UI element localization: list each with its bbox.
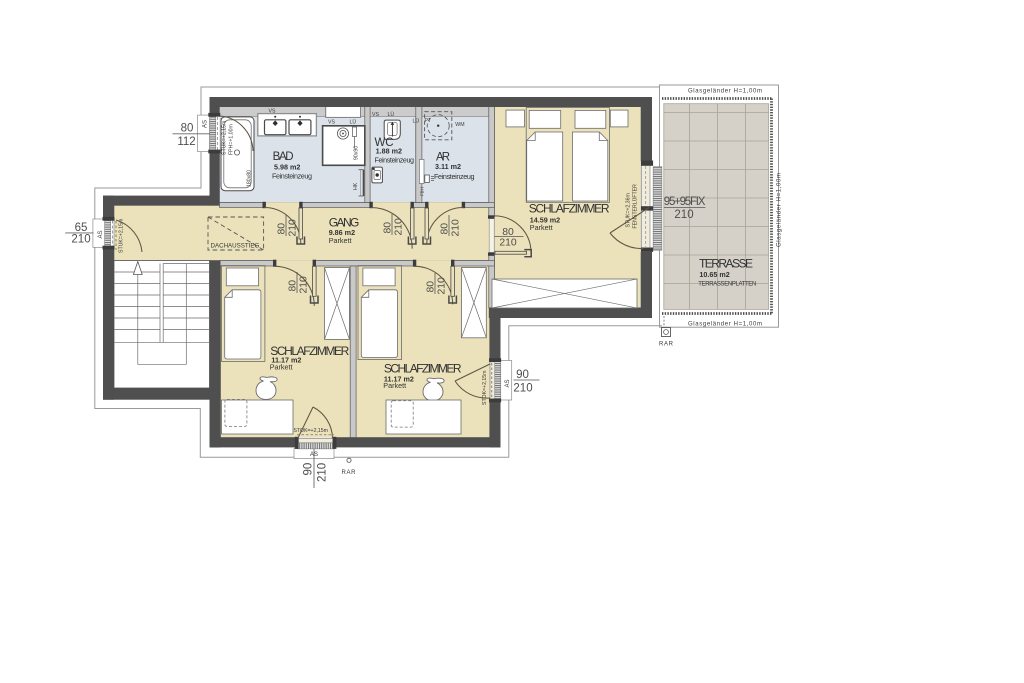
- svg-text:TERRASSE: TERRASSE: [699, 257, 753, 271]
- svg-text:210: 210: [499, 238, 517, 249]
- svg-text:RAR: RAR: [659, 342, 674, 348]
- svg-text:Parkett: Parkett: [530, 223, 553, 232]
- svg-text:1.88 m2: 1.88 m2: [376, 146, 402, 155]
- svg-text:STUK=+2,15m: STUK=+2,15m: [222, 121, 228, 155]
- svg-text:Parkett: Parkett: [329, 236, 352, 245]
- svg-text:LÜ: LÜ: [413, 118, 420, 125]
- svg-text:112: 112: [177, 136, 195, 148]
- svg-text:AS: AS: [203, 120, 209, 128]
- svg-text:65: 65: [75, 222, 88, 234]
- svg-text:BAD: BAD: [273, 151, 294, 163]
- svg-text:10.65 m2: 10.65 m2: [699, 270, 729, 279]
- svg-text:Feinsteinzeug: Feinsteinzeug: [375, 156, 415, 165]
- svg-text:Glasgeländer H=1,00m: Glasgeländer H=1,00m: [777, 173, 783, 247]
- svg-text:Feinsteinzeug: Feinsteinzeug: [272, 171, 312, 180]
- svg-text:SCHLAFZIMMER: SCHLAFZIMMER: [529, 202, 610, 216]
- svg-text:210: 210: [437, 277, 448, 295]
- svg-text:Glasgeländer H=1,00m: Glasgeländer H=1,00m: [688, 89, 762, 95]
- svg-text:AS: AS: [505, 379, 511, 387]
- svg-text:210: 210: [674, 209, 693, 221]
- svg-text:VS: VS: [269, 109, 276, 115]
- svg-text:FENSTERLÜFTER: FENSTERLÜFTER: [632, 184, 639, 229]
- svg-text:210: 210: [299, 276, 310, 294]
- svg-text:90: 90: [303, 463, 315, 476]
- svg-text:80: 80: [181, 122, 194, 134]
- svg-text:Parkett: Parkett: [270, 363, 293, 372]
- svg-text:FBH: FBH: [420, 187, 425, 196]
- svg-text:TERRASSENPLATTEN: TERRASSENPLATTEN: [698, 282, 756, 288]
- svg-text:FPH=+1,00m: FPH=+1,00m: [229, 124, 235, 155]
- svg-text:PT: PT: [425, 118, 432, 124]
- svg-text:WM: WM: [455, 122, 464, 128]
- svg-text:210: 210: [288, 219, 299, 237]
- svg-text:5.98 m2: 5.98 m2: [274, 163, 300, 172]
- svg-text:Glasgeländer H=1,00m: Glasgeländer H=1,00m: [688, 322, 762, 328]
- svg-text:210: 210: [317, 463, 329, 482]
- svg-text:90: 90: [516, 369, 529, 381]
- svg-text:210: 210: [394, 218, 405, 236]
- svg-text:Feinsteinzeug: Feinsteinzeug: [434, 172, 475, 181]
- svg-text:LÜ: LÜ: [388, 111, 395, 118]
- svg-text:AS: AS: [98, 230, 104, 238]
- svg-text:Parkett: Parkett: [383, 381, 406, 390]
- svg-text:210: 210: [71, 234, 90, 246]
- svg-text:95+95FIX: 95+95FIX: [664, 196, 706, 208]
- svg-text:210: 210: [513, 383, 532, 395]
- svg-text:STOK=+2,15m: STOK=+2,15m: [482, 370, 488, 405]
- svg-text:STUK=+2,36m: STUK=+2,36m: [626, 193, 632, 227]
- svg-text:VS: VS: [328, 120, 335, 126]
- svg-text:210: 210: [451, 219, 462, 237]
- svg-text:VS: VS: [372, 112, 379, 118]
- svg-text:DACHAUSSTIEG: DACHAUSSTIEG: [211, 243, 260, 250]
- svg-text:180x80: 180x80: [247, 170, 253, 187]
- svg-text:STUK=+2,15m: STUK=+2,15m: [119, 219, 125, 253]
- svg-text:STOK=+2,15m: STOK=+2,15m: [294, 428, 329, 434]
- svg-text:90x90: 90x90: [354, 146, 360, 160]
- svg-text:RAR: RAR: [342, 470, 357, 476]
- svg-text:LÜ: LÜ: [350, 119, 357, 126]
- svg-text:HK: HK: [353, 182, 359, 190]
- svg-text:3.11 m2: 3.11 m2: [435, 162, 461, 171]
